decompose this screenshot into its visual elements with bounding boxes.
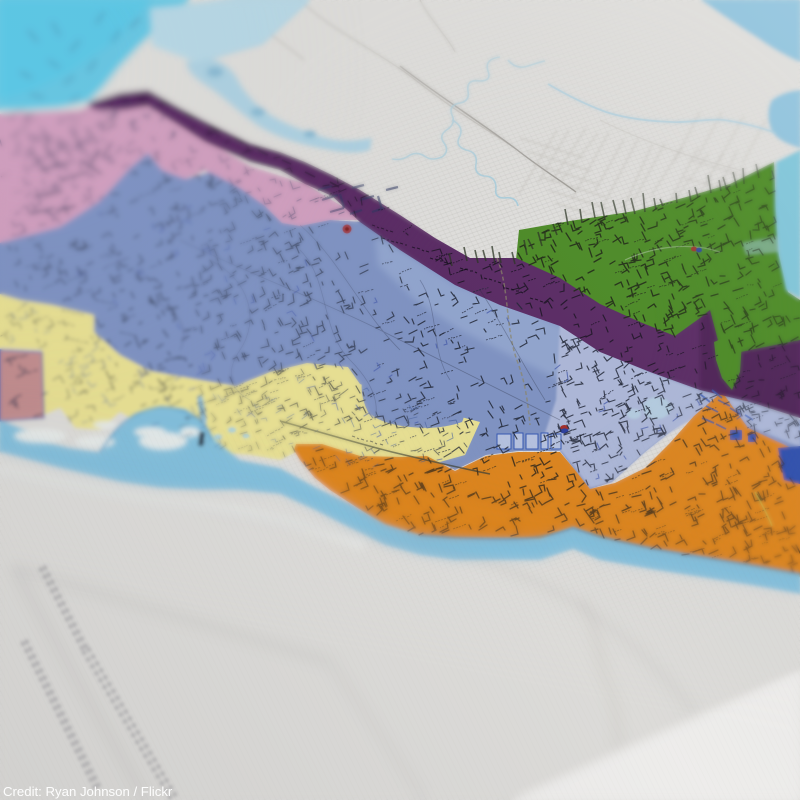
svg-text:Credit: Ryan Johnson / Flickr: Credit: Ryan Johnson / Flickr xyxy=(3,784,173,799)
